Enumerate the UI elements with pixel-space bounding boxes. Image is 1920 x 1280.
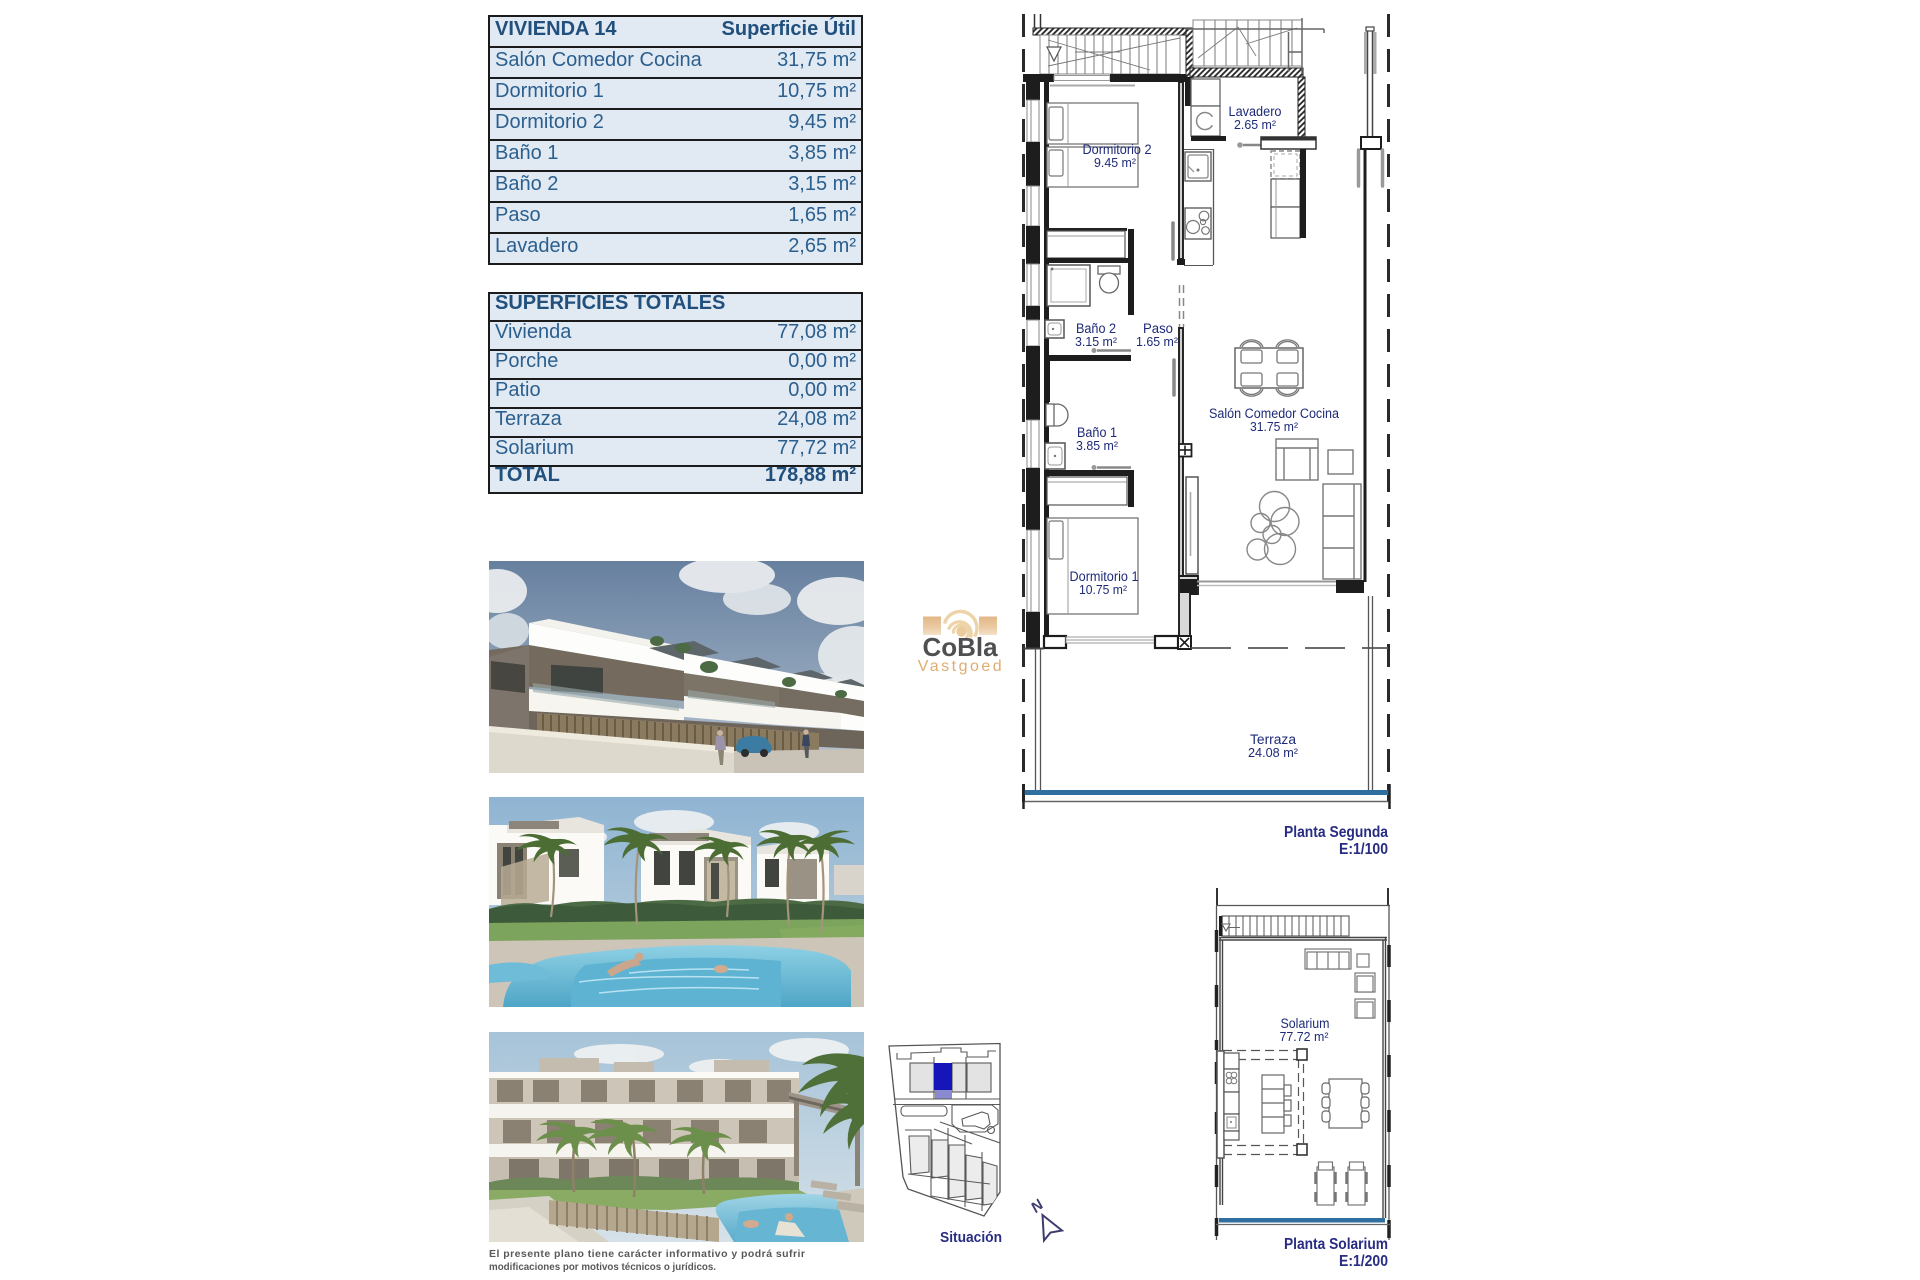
svg-text:Vastgoed: Vastgoed bbox=[918, 658, 1004, 675]
svg-text:1.65 m²: 1.65 m² bbox=[1136, 334, 1179, 349]
svg-text:3.85 m²: 3.85 m² bbox=[1076, 438, 1119, 453]
svg-text:El presente plano tiene caráct: El presente plano tiene carácter informa… bbox=[489, 1248, 805, 1260]
svg-text:3.15 m²: 3.15 m² bbox=[1075, 334, 1118, 349]
svg-text:Situación: Situación bbox=[940, 1229, 1002, 1246]
svg-text:E:1/100: E:1/100 bbox=[1339, 841, 1388, 858]
svg-text:10.75 m²: 10.75 m² bbox=[1079, 582, 1128, 597]
svg-text:31.75 m²: 31.75 m² bbox=[1250, 419, 1299, 434]
svg-text:Planta Solarium: Planta Solarium bbox=[1284, 1236, 1388, 1253]
svg-text:E:1/200: E:1/200 bbox=[1339, 1253, 1388, 1270]
svg-text:modificaciones por motivos téc: modificaciones por motivos técnicos o ju… bbox=[489, 1261, 716, 1273]
svg-text:N: N bbox=[1028, 1196, 1048, 1217]
svg-text:24.08 m²: 24.08 m² bbox=[1248, 745, 1299, 760]
svg-text:77.72 m²: 77.72 m² bbox=[1280, 1029, 1330, 1044]
svg-text:2.65 m²: 2.65 m² bbox=[1234, 117, 1277, 132]
svg-text:Planta Segunda: Planta Segunda bbox=[1284, 824, 1388, 841]
svg-text:9.45 m²: 9.45 m² bbox=[1094, 155, 1137, 170]
